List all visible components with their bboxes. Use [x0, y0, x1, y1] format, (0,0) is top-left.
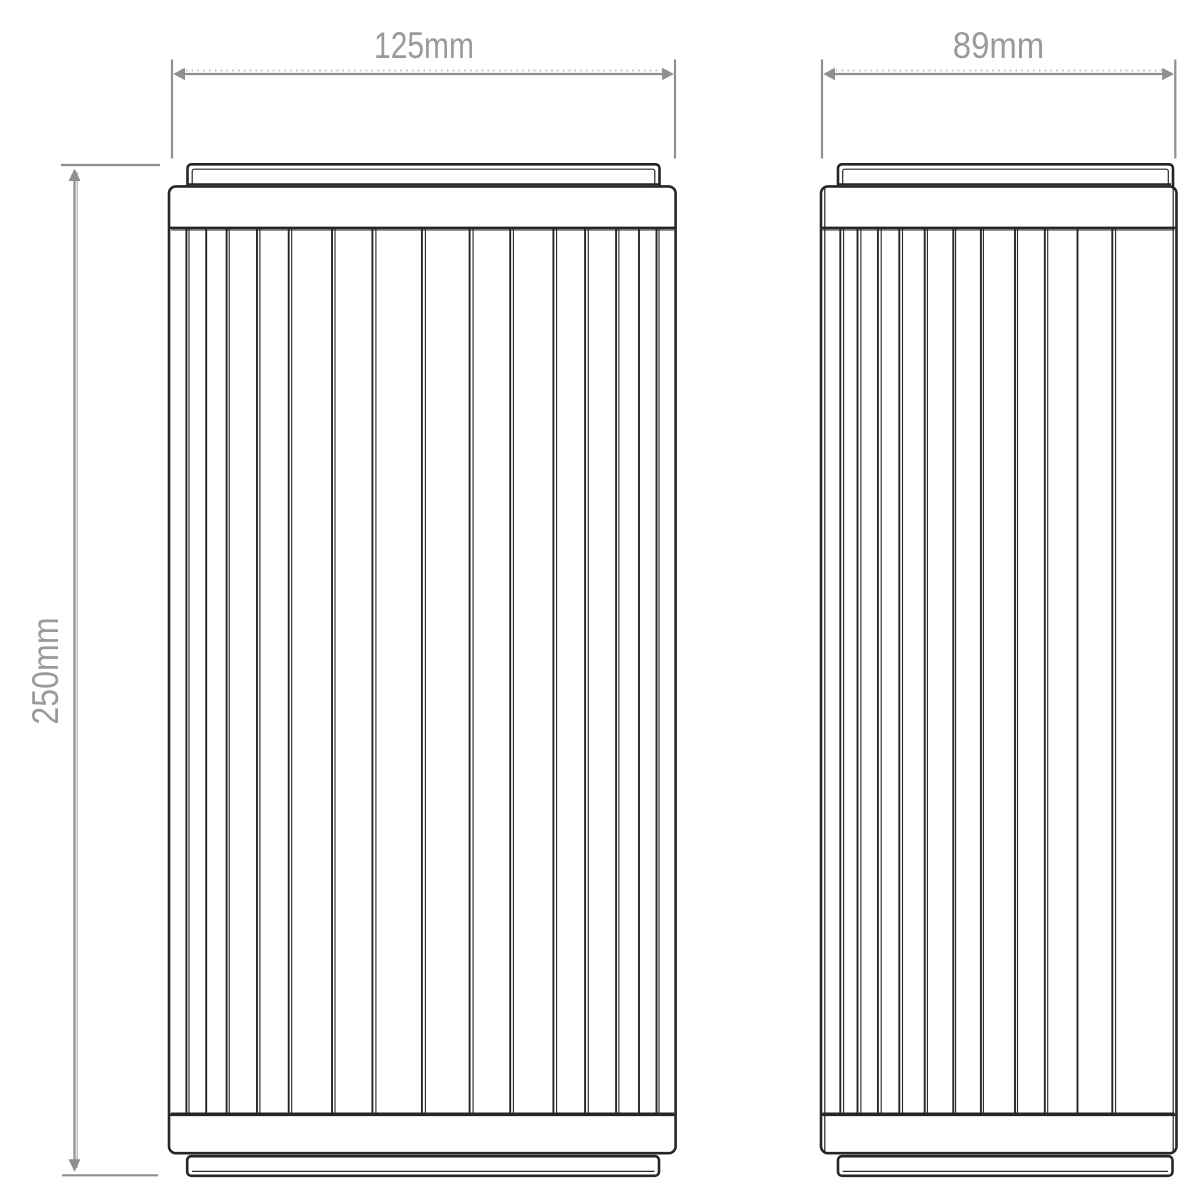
svg-text:125mm: 125mm — [374, 26, 474, 67]
svg-text:89mm: 89mm — [953, 25, 1044, 66]
svg-text:250mm: 250mm — [26, 617, 67, 724]
